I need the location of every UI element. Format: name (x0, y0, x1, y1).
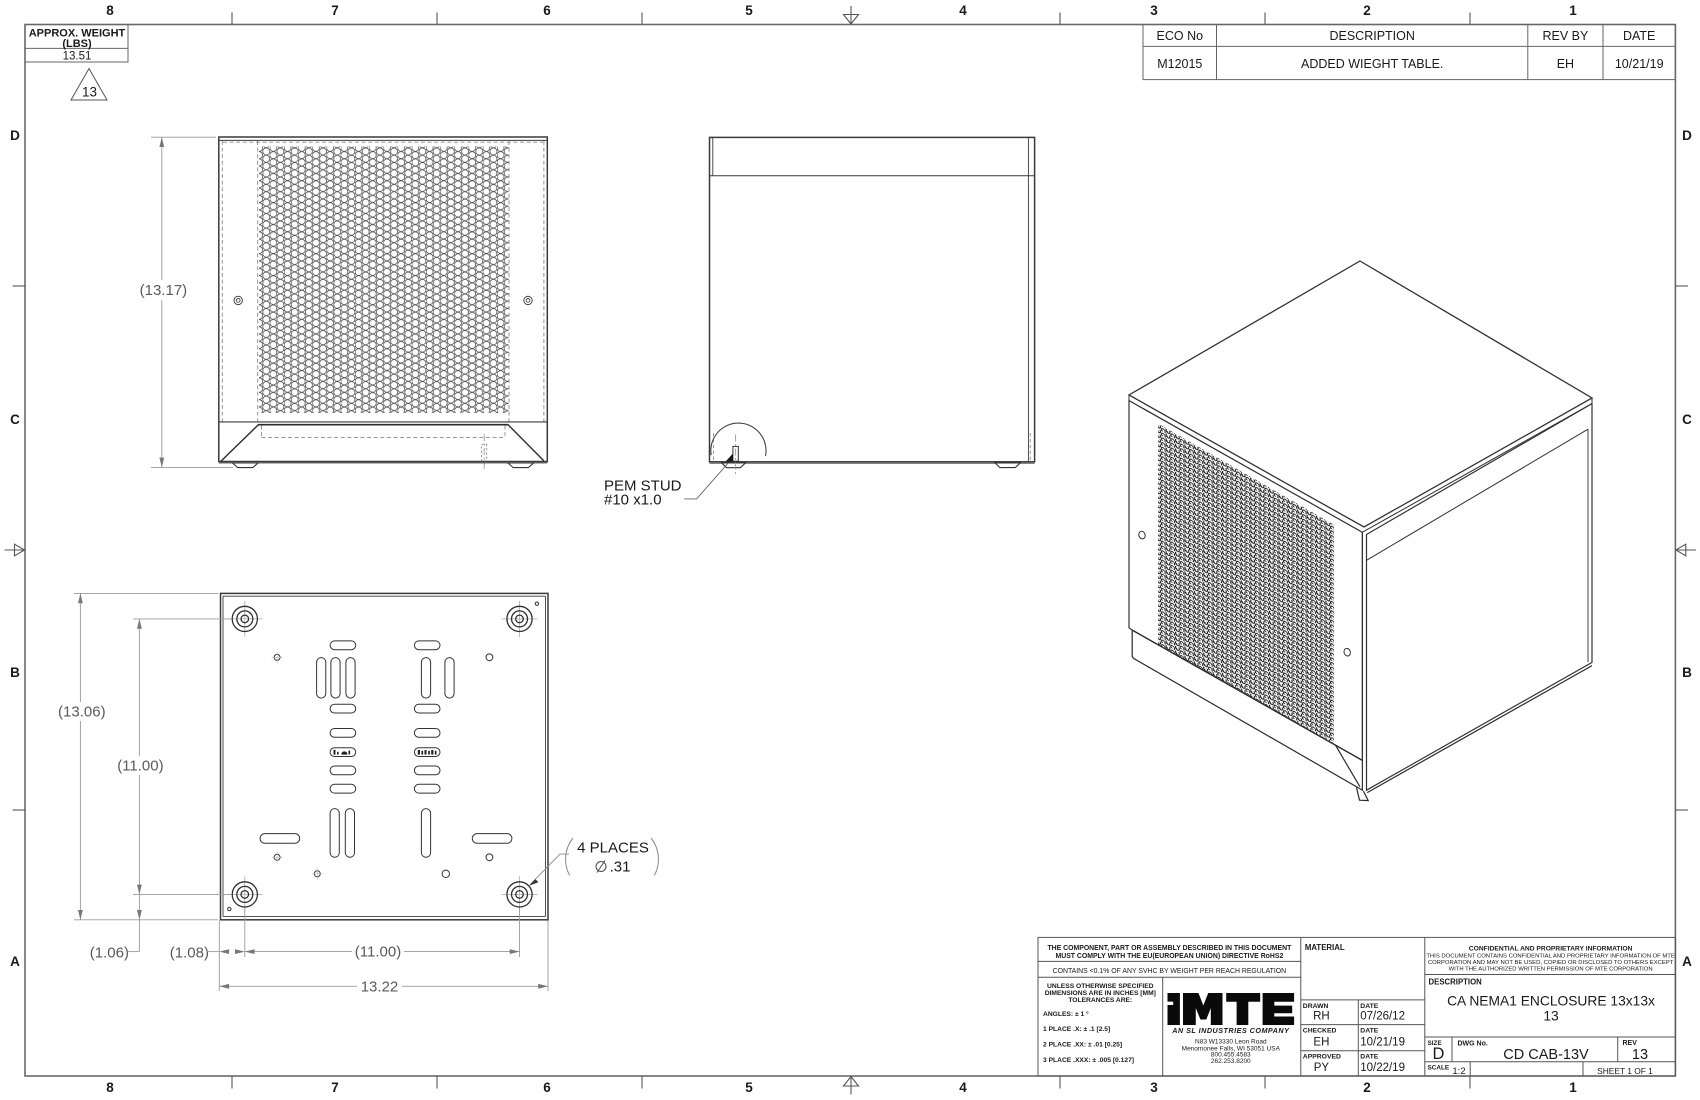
svg-text:6: 6 (543, 1080, 551, 1095)
svg-text:07/26/12: 07/26/12 (1360, 1011, 1405, 1023)
svg-text:UNLESS OTHERWISE SPECIFIED: UNLESS OTHERWISE SPECIFIED (1047, 983, 1154, 990)
svg-text:8: 8 (106, 3, 114, 18)
svg-text:1 PLACE .X: ± .1 [2.5]: 1 PLACE .X: ± .1 [2.5] (1043, 1026, 1110, 1033)
svg-text:(11.00): (11.00) (117, 758, 163, 775)
svg-text:A: A (1682, 954, 1692, 969)
svg-text:(1.08): (1.08) (170, 945, 209, 962)
svg-text:2: 2 (1363, 3, 1371, 18)
svg-text:(13.17): (13.17) (140, 282, 188, 299)
svg-text:RH: RH (1313, 1011, 1330, 1023)
svg-text:TOLERANCES ARE:: TOLERANCES ARE: (1068, 997, 1132, 1004)
svg-text:MATERIAL: MATERIAL (1305, 943, 1345, 952)
svg-text:1: 1 (1569, 1080, 1577, 1095)
svg-text:DESCRIPTION: DESCRIPTION (1429, 978, 1483, 987)
svg-text:8: 8 (106, 1080, 114, 1095)
svg-text:C: C (1682, 412, 1692, 427)
svg-text:7: 7 (331, 3, 339, 18)
svg-text:B: B (10, 665, 20, 680)
svg-text:2: 2 (1363, 1080, 1371, 1095)
svg-text:SHEET 1 OF 1: SHEET 1 OF 1 (1597, 1066, 1653, 1076)
svg-text:#10 x1.0: #10 x1.0 (604, 491, 662, 508)
svg-text:ECO No: ECO No (1157, 29, 1204, 43)
svg-text:CD CAB-13V: CD CAB-13V (1503, 1047, 1589, 1063)
svg-text:D: D (1682, 128, 1692, 143)
svg-text:THE COMPONENT, PART OR ASSEMBL: THE COMPONENT, PART OR ASSEMBLY DESCRIBE… (1047, 945, 1292, 952)
svg-text:CA NEMA1 ENCLOSURE 13x13x: CA NEMA1 ENCLOSURE 13x13x (1447, 994, 1655, 1009)
svg-text:ANGLES: ± 1 °: ANGLES: ± 1 ° (1043, 1010, 1089, 1018)
svg-text:1: 1 (1569, 3, 1577, 18)
svg-text:DWG No.: DWG No. (1458, 1041, 1488, 1048)
svg-text:CORPORATION AND MAY NOT BE USE: CORPORATION AND MAY NOT BE USED, COPIED … (1428, 960, 1674, 966)
svg-text:4: 4 (959, 1080, 967, 1095)
svg-text:MUST COMPLY WITH THE EU(EUROPE: MUST COMPLY WITH THE EU(EUROPEAN UNION) … (1056, 953, 1284, 960)
svg-text:DATE: DATE (1360, 1028, 1378, 1035)
svg-text:6: 6 (543, 3, 551, 18)
svg-text:10/22/19: 10/22/19 (1360, 1062, 1405, 1074)
svg-text:DATE: DATE (1360, 1003, 1378, 1010)
svg-text:(1.06): (1.06) (90, 945, 129, 962)
svg-text:3: 3 (1150, 3, 1158, 18)
svg-text:THIS DOCUMENT CONTAINS CONFIDE: THIS DOCUMENT CONTAINS CONFIDENTIAL AND … (1426, 954, 1675, 960)
svg-text:ADDED WIEGHT TABLE.: ADDED WIEGHT TABLE. (1301, 57, 1443, 71)
svg-text:CHECKED: CHECKED (1303, 1028, 1337, 1035)
svg-text:SCALE: SCALE (1428, 1065, 1450, 1072)
svg-text:262.253.8200: 262.253.8200 (1211, 1058, 1251, 1065)
svg-text:EH: EH (1557, 57, 1574, 71)
svg-text:WITH THE AUTHORIZED WRITTEN PE: WITH THE AUTHORIZED WRITTEN PERMISSION O… (1449, 967, 1653, 973)
svg-text:4: 4 (959, 3, 967, 18)
svg-text:10/21/19: 10/21/19 (1360, 1037, 1405, 1049)
svg-text:D: D (1433, 1045, 1445, 1063)
svg-text:(13.06): (13.06) (58, 704, 106, 721)
svg-text:2 PLACE .XX: ± .01 [0.25]: 2 PLACE .XX: ± .01 [0.25] (1043, 1042, 1122, 1049)
svg-text:CONTAINS <0.1% OF ANY SVHC BY: CONTAINS <0.1% OF ANY SVHC BY WEIGHT PER… (1053, 968, 1287, 975)
svg-text:DRAWN: DRAWN (1303, 1003, 1329, 1010)
svg-text:DATE: DATE (1623, 29, 1655, 43)
svg-text:5: 5 (745, 3, 753, 18)
svg-text:(LBS): (LBS) (62, 38, 92, 50)
svg-text:A: A (10, 954, 20, 969)
svg-text:DATE: DATE (1360, 1054, 1378, 1061)
svg-text:REV: REV (1623, 1040, 1638, 1047)
svg-text:13: 13 (1632, 1047, 1648, 1063)
svg-text:D: D (10, 128, 20, 143)
svg-text:DESCRIPTION: DESCRIPTION (1329, 29, 1414, 43)
svg-text:B: B (1682, 665, 1692, 680)
svg-text:APPROVED: APPROVED (1303, 1054, 1341, 1061)
svg-text:13.22: 13.22 (361, 978, 399, 995)
svg-text:13: 13 (1543, 1009, 1559, 1024)
svg-text:REV BY: REV BY (1542, 29, 1589, 43)
svg-text:7: 7 (331, 1080, 339, 1095)
svg-text:4 PLACES: 4 PLACES (577, 840, 649, 857)
svg-text:10/21/19: 10/21/19 (1615, 57, 1664, 71)
svg-text:13.51: 13.51 (63, 51, 92, 63)
svg-text:.31: .31 (610, 859, 631, 876)
svg-text:1:2: 1:2 (1452, 1066, 1465, 1077)
svg-text:PY: PY (1314, 1062, 1330, 1074)
svg-text:M12015: M12015 (1157, 57, 1202, 71)
svg-text:EH: EH (1313, 1037, 1329, 1049)
svg-text:AN SL INDUSTRIES COMPANY: AN SL INDUSTRIES COMPANY (1171, 1026, 1290, 1035)
svg-text:CONFIDENTIAL AND PROPRIETARY I: CONFIDENTIAL AND PROPRIETARY INFORMATION (1469, 946, 1633, 953)
svg-text:DIMENSIONS ARE IN INCHES [MM]: DIMENSIONS ARE IN INCHES [MM] (1045, 990, 1156, 997)
svg-text:C: C (10, 412, 20, 427)
svg-text:5: 5 (745, 1080, 753, 1095)
svg-text:(11.00): (11.00) (355, 944, 401, 961)
svg-text:3: 3 (1150, 1080, 1158, 1095)
svg-text:3 PLACE .XXX: ± .005 [0.127]: 3 PLACE .XXX: ± .005 [0.127] (1043, 1057, 1134, 1064)
svg-text:13: 13 (82, 85, 97, 100)
